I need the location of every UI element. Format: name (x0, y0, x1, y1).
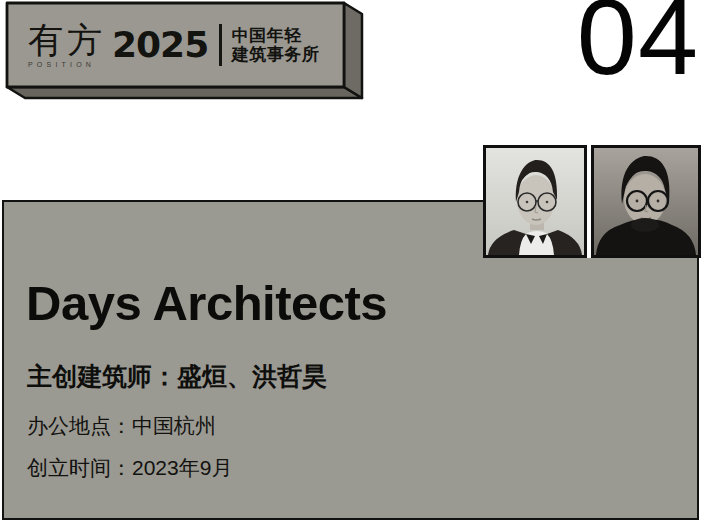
brand-name-en: POSITION (28, 61, 106, 68)
brand-name-zh: 有方 (28, 22, 106, 59)
banner-subtitle: 中国年轻 建筑事务所 (232, 26, 320, 64)
portrait-photo-right (591, 145, 701, 258)
brand-logo: 有方 POSITION (28, 22, 106, 69)
portrait-photos (483, 145, 701, 258)
banner-year: 2025 (112, 27, 208, 63)
banner-divider (219, 24, 222, 66)
founded-line: 创立时间：2023年9月 (27, 454, 232, 481)
firm-name: Days Architects (26, 278, 387, 329)
banner-content: 有方 POSITION 2025 中国年轻 建筑事务所 (7, 3, 344, 87)
page-number: 04 (577, 0, 699, 91)
banner-subtitle-line2: 建筑事务所 (232, 45, 320, 64)
location-line: 办公地点：中国杭州 (27, 412, 216, 439)
portrait-photo-left (483, 145, 587, 258)
architects-line: 主创建筑师：盛烜、洪哲昊 (27, 360, 327, 393)
banner-subtitle-line1: 中国年轻 (232, 26, 320, 45)
slide: 有方 POSITION 2025 中国年轻 建筑事务所 04 Days Arch… (0, 0, 702, 523)
